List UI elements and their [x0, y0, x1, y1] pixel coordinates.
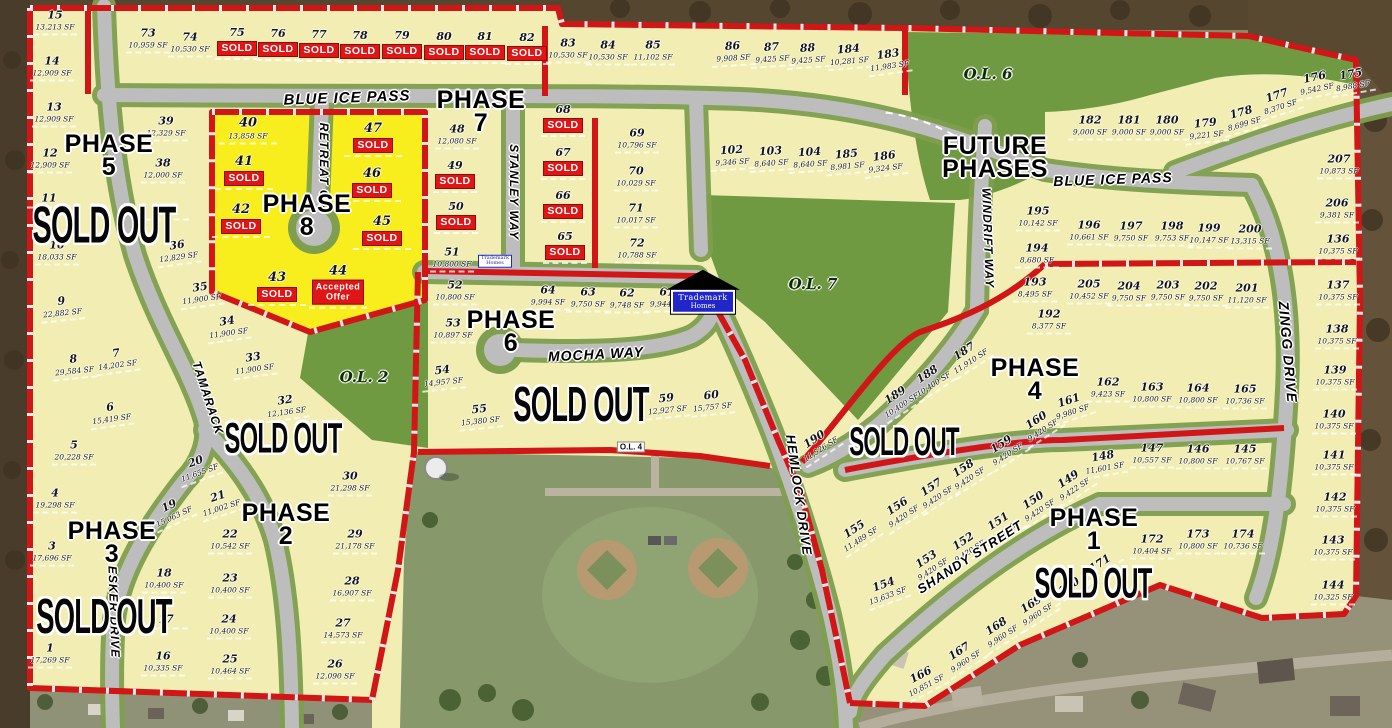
base-map	[0, 0, 1392, 728]
plat-map: 1513,213 SF1412,909 SF1312,909 SF1212,90…	[0, 0, 1392, 728]
